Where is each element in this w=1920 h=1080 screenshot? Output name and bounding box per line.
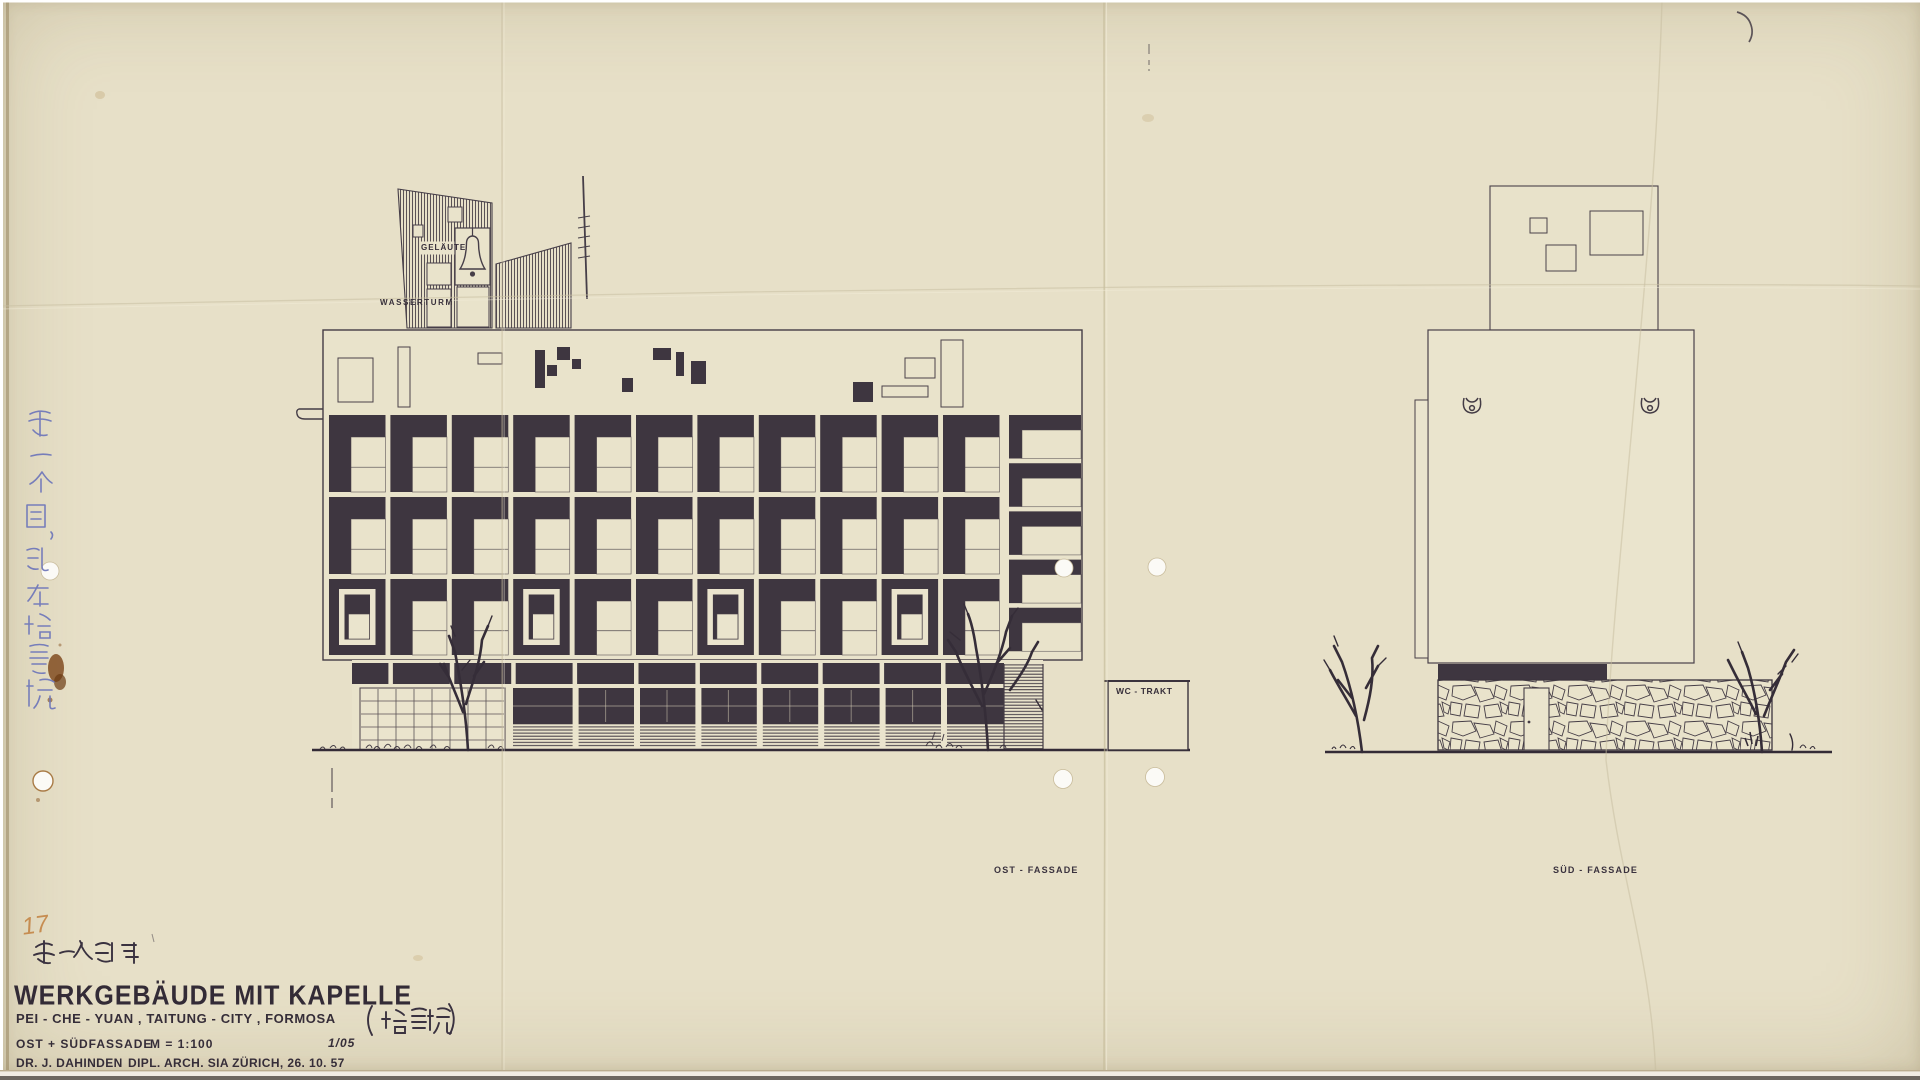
architect-name: DR. J. DAHINDEN xyxy=(16,1056,123,1070)
ost-fassade-label: OST - FASSADE xyxy=(994,865,1079,875)
stone-base-wall xyxy=(1438,680,1772,750)
bell-icon xyxy=(455,228,490,285)
sud-elevation xyxy=(1324,186,1832,752)
pen-mark xyxy=(1737,12,1752,42)
tree xyxy=(1324,636,1386,752)
ost-elevation xyxy=(297,176,1190,808)
wasserturm-label: WASSERTURM xyxy=(380,298,454,307)
canopy-spout xyxy=(297,409,323,419)
handwritten-titleblock-note xyxy=(34,941,138,963)
drawing-subtitle: PEI - CHE - YUAN , TAITUNG - CITY , FORM… xyxy=(16,1011,336,1026)
recess-shadow-band xyxy=(1438,664,1607,680)
sud-pilaster xyxy=(1415,400,1428,658)
mast xyxy=(578,176,590,299)
gelaute-label: GELÄUTE xyxy=(421,243,466,252)
wc-trakt-label: WC - TRAKT xyxy=(1116,686,1173,696)
scanned-drawing-sheet: GELÄUTE WASSERTURM WC - TRAKT OST - FASS… xyxy=(0,0,1920,1080)
drawing-scale: M = 1:100 xyxy=(150,1037,213,1051)
ost-ground-floor xyxy=(352,660,1043,750)
sud-tower xyxy=(1490,186,1658,330)
drawing-canvas xyxy=(0,0,1920,1080)
sheet-number: 1/05 xyxy=(328,1036,355,1050)
architect-info: DIPL. ARCH. SIA ZÜRICH, 26. 10. 57 xyxy=(128,1056,345,1070)
door xyxy=(1524,688,1549,750)
sud-fassade-label: SÜD - FASSADE xyxy=(1553,865,1638,875)
drawing-title: WERKGEBÄUDE MIT KAPELLE xyxy=(14,980,412,1012)
corner-number: 17 xyxy=(20,910,50,941)
drawing-contents: OST + SÜDFASSADE xyxy=(16,1037,152,1051)
sud-main-body xyxy=(1428,330,1694,663)
